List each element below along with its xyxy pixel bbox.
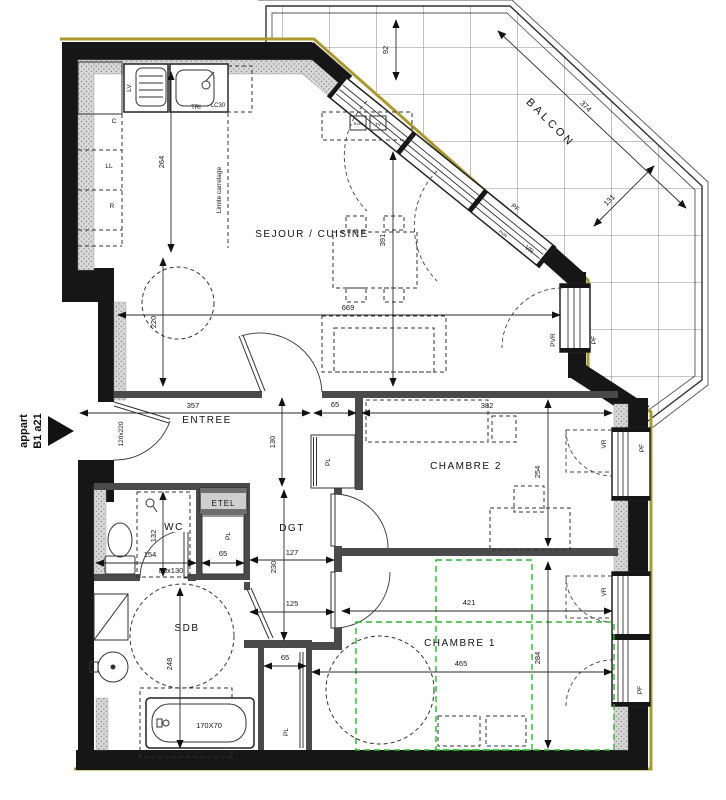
dim-label: 357	[187, 401, 200, 410]
dim-label: 421	[463, 598, 476, 607]
dim-label: 254	[533, 466, 542, 479]
pf-label: PF	[591, 336, 598, 344]
washbasin-drain	[111, 665, 116, 670]
room-label-chambre1: CHAMBRE 1	[424, 638, 496, 649]
pl-label: PL	[283, 728, 290, 736]
door-leaf	[184, 530, 188, 578]
room-label-sejour: SEJOUR / CUISINE	[255, 229, 368, 240]
tv-label: TV	[375, 122, 381, 127]
frame-end	[612, 428, 650, 432]
dim-label: 92	[381, 46, 390, 54]
partition-bedrooms	[334, 548, 618, 556]
frame-end	[612, 702, 650, 706]
vr-label: VR	[601, 587, 608, 596]
lining-left	[78, 60, 94, 270]
lining-right-2	[614, 500, 628, 574]
floor-plan-svg: BALCON 92 374 131	[0, 0, 726, 800]
lc30-label: LC30	[211, 103, 226, 109]
dim-label: 264	[157, 156, 166, 169]
dim-label: 65	[331, 400, 339, 409]
dim-label: 465	[455, 659, 468, 668]
mullion	[612, 634, 650, 640]
etel-bar	[200, 488, 247, 493]
shower-size-label: 80x130	[159, 566, 184, 575]
tri-label: TRI	[191, 105, 201, 111]
frame-end	[560, 348, 590, 352]
partition	[188, 574, 196, 581]
lv-label: LV	[126, 84, 133, 92]
room-label-wc: WC	[164, 522, 184, 533]
lining-entrance	[114, 302, 126, 400]
partition	[258, 648, 264, 750]
pvr-label: PVR	[550, 333, 557, 347]
dim-label: 669	[342, 303, 355, 312]
dim-label: 132	[149, 530, 158, 543]
pl-label: PL	[225, 532, 232, 540]
room-label-sdb: SDB	[174, 623, 199, 634]
partition	[244, 582, 250, 590]
dim-label: 65	[281, 653, 289, 662]
door-leaf	[331, 572, 335, 628]
partition	[355, 398, 363, 490]
lining-right-1	[614, 404, 628, 430]
dim-label: 154	[144, 550, 157, 559]
partition	[334, 488, 342, 494]
door-size-label: 120x220	[118, 421, 125, 446]
apartment-label-1: appart	[18, 414, 30, 448]
vr-label: VR	[601, 439, 608, 448]
pf-label: PF	[637, 686, 644, 694]
wall-left-upper	[62, 42, 78, 272]
room-label-chambre2: CHAMBRE 2	[430, 461, 502, 472]
wall-left-entrance	[98, 300, 114, 402]
partition	[114, 391, 262, 398]
partition	[306, 648, 312, 750]
dim-label: 230	[269, 561, 278, 574]
frame-end	[612, 572, 650, 576]
window-frame	[560, 284, 590, 352]
lining-wc	[94, 486, 106, 574]
partition	[94, 574, 140, 581]
bath-size-label: 170X70	[196, 721, 222, 730]
c-label: C	[112, 118, 117, 125]
partition	[196, 574, 250, 580]
room-label-entree: ENTREE	[182, 415, 232, 426]
partition	[244, 640, 312, 648]
etel-label: ETEL	[211, 499, 235, 508]
dim-label: 284	[533, 652, 542, 665]
dim-label: 130	[268, 436, 277, 449]
pf-label: PF	[639, 444, 646, 452]
lining-right-3	[614, 704, 628, 750]
dim-label: 391	[378, 234, 387, 247]
wall-bottom	[76, 750, 648, 770]
dim-label: 65	[219, 549, 227, 558]
rj45-label: RJ45	[354, 122, 363, 126]
dim-label: 248	[165, 658, 174, 671]
wall-top	[62, 42, 312, 60]
partition	[322, 391, 618, 398]
lining-bottom-left	[96, 698, 108, 750]
dim-label: 220	[149, 316, 158, 329]
pl-label: PL	[325, 458, 332, 466]
wall-left-lower	[78, 500, 94, 752]
wall-left-jog	[62, 268, 114, 302]
ll-label: LL	[105, 163, 113, 170]
dim-label: 382	[481, 401, 494, 410]
frame-end	[560, 284, 590, 288]
frame-end	[612, 496, 650, 500]
dim-label: 125	[286, 599, 299, 608]
dim-label: 127	[286, 548, 299, 557]
apartment-label-2: B1 a21	[32, 413, 44, 448]
limite-carrelage-label: Limite carrelage	[216, 166, 223, 213]
room-label-dgt: DGT	[279, 523, 305, 534]
r-label: R	[110, 203, 115, 210]
floor-plan-page: BALCON 92 374 131	[0, 0, 726, 800]
etel-bar	[200, 509, 247, 514]
door-leaf	[331, 494, 335, 546]
